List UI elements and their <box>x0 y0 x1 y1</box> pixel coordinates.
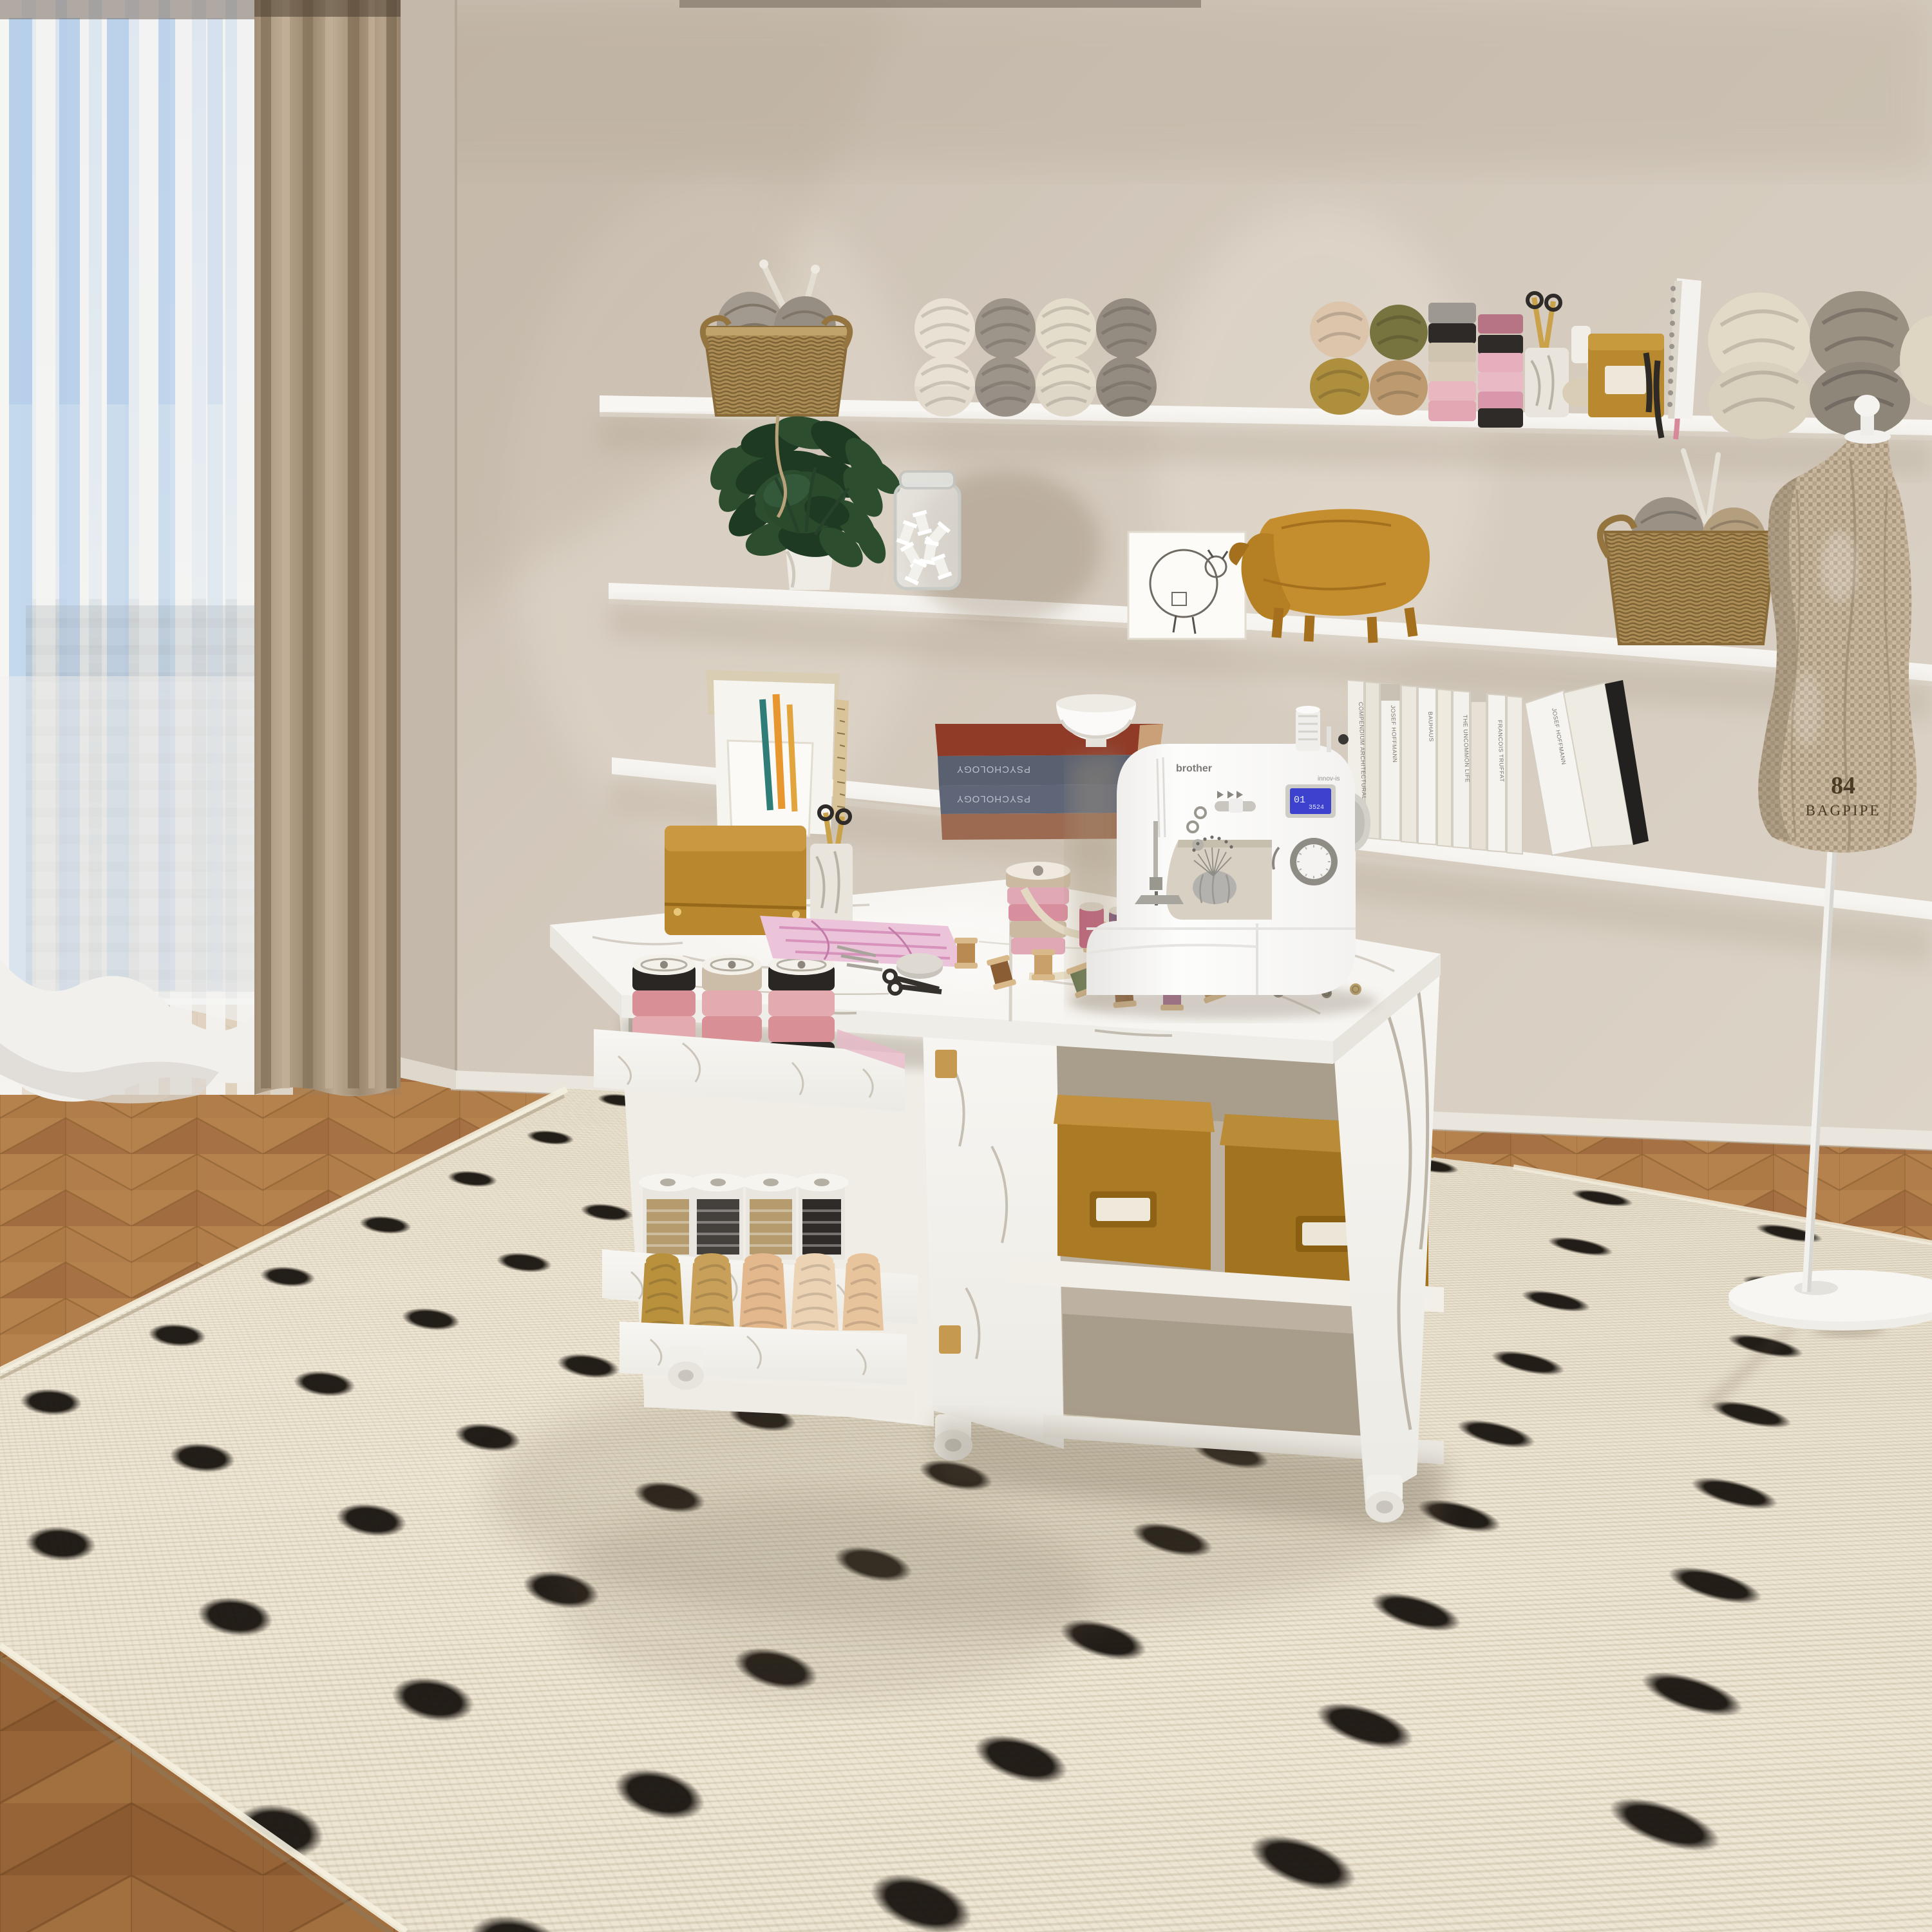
svg-text:brother: brother <box>1176 763 1212 774</box>
svg-text:innov-is: innov-is <box>1318 775 1340 782</box>
svg-text:84: 84 <box>1831 772 1855 799</box>
svg-text:3524: 3524 <box>1309 804 1324 811</box>
svg-text:BAGPIPE: BAGPIPE <box>1806 802 1881 819</box>
svg-text:01: 01 <box>1294 795 1305 806</box>
